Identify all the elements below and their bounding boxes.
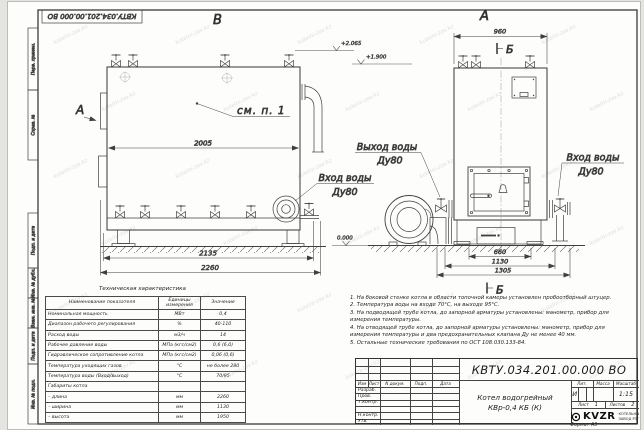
inlet-left-label-dn: Ду80 bbox=[331, 187, 357, 198]
note-line: измерения температуры и два предохраните… bbox=[350, 332, 638, 339]
top-valve bbox=[221, 54, 230, 67]
svg-text:+2.065: +2.065 bbox=[341, 41, 362, 47]
title-block: КВТУ.034.201.00.000 ВО Изм Лист N докум.… bbox=[355, 358, 638, 424]
boiler-side-view: 2005 2135 2260 см. п. 1 В А bbox=[75, 13, 326, 276]
outlet-valve bbox=[436, 198, 453, 218]
svg-text:1130: 1130 bbox=[492, 258, 509, 266]
table-row: Диапазон рабочего регулирования%40-110 bbox=[46, 320, 246, 330]
dimension: 960 bbox=[454, 28, 547, 65]
svg-text:660: 660 bbox=[494, 248, 506, 256]
sheet-cell: Лист 1 bbox=[571, 401, 605, 408]
tech-table-title: Техническая характеристика bbox=[99, 286, 186, 292]
strip-label: Инв. № дубл. bbox=[31, 268, 37, 297]
col-header: Значение bbox=[201, 297, 246, 310]
dimension: 2135 bbox=[104, 221, 314, 261]
table-row: Номинальная мощностьМВт0,4 bbox=[46, 310, 246, 320]
rev-header: N докум. bbox=[380, 380, 410, 387]
corner-stamp-text: КВТУ.034.201.00.000 ВО bbox=[47, 12, 136, 20]
inlet-right-label: Вход воды bbox=[566, 153, 620, 164]
table-row: Рабочее давление водыМПа (кгс/см2)0,6 (6… bbox=[46, 340, 246, 350]
top-valve bbox=[112, 54, 121, 67]
section-marker-top: Б bbox=[497, 43, 514, 56]
blower-fan bbox=[385, 196, 452, 246]
outlet-label: Выход воды bbox=[357, 142, 418, 153]
table-row: – ширинамм1130 bbox=[46, 402, 246, 412]
control-box bbox=[512, 77, 536, 98]
lit-value: И bbox=[571, 387, 578, 401]
svg-text:А: А bbox=[75, 103, 84, 117]
top-valve bbox=[472, 55, 481, 68]
sheets-cell: Листов 2 bbox=[605, 401, 639, 408]
strip-label: Подп. и дата bbox=[31, 331, 37, 361]
top-valve bbox=[526, 55, 535, 68]
rev-header: Изм bbox=[356, 380, 368, 387]
table-row: Гидравлическое сопротивление котлаМПа (к… bbox=[46, 351, 246, 361]
view-direction-A: А bbox=[75, 103, 96, 121]
table-row: Габариты котла bbox=[46, 382, 246, 392]
svg-text:0.000: 0.000 bbox=[337, 236, 353, 242]
svg-text:см. п. 1: см. п. 1 bbox=[237, 105, 286, 117]
sign-row-label: Н.контр. bbox=[356, 412, 382, 418]
drain-valve bbox=[211, 205, 220, 218]
table-row: – длинамм2260 bbox=[46, 392, 246, 402]
doc-title-line2: КВр-0,4 КБ (К) bbox=[488, 403, 542, 413]
note-line: 4. На отводящей трубе котла, до запорной… bbox=[350, 325, 638, 332]
callout-note-1: см. п. 1 bbox=[196, 102, 290, 117]
sheets-label: Листов bbox=[610, 402, 626, 407]
table-header-row: Наименование показателя Единицы измерени… bbox=[46, 297, 246, 310]
svg-text:+1.900: +1.900 bbox=[366, 55, 387, 61]
svg-text:960: 960 bbox=[494, 28, 506, 36]
document-title: Котел водогрейный КВр-0,4 КБ (К) bbox=[459, 380, 571, 425]
inlet-left-label: Вход воды bbox=[318, 173, 372, 184]
table-row: Температура воды (Вход/выход)°С70/95 bbox=[46, 371, 246, 381]
drain-valve bbox=[177, 205, 186, 218]
company-name-line2: ЗАВОД РЭП bbox=[618, 417, 639, 421]
drawing-page: kotelni-zav.kzkotelni-zav.kzkotelni-zav.… bbox=[0, 0, 644, 430]
scale-value: 1:15 bbox=[613, 387, 639, 401]
door-latch bbox=[499, 185, 507, 193]
view-label-A: А bbox=[479, 9, 489, 24]
sheet-label: Лист bbox=[578, 402, 589, 407]
sheets-value: 2 bbox=[631, 402, 634, 408]
company-logo-text: KVZR bbox=[583, 411, 615, 422]
rev-header: Дата bbox=[432, 380, 459, 387]
furnace-door bbox=[468, 167, 530, 216]
drain-valve bbox=[141, 205, 150, 218]
sign-row-label: Пров. bbox=[356, 393, 382, 399]
rev-header: Подп. bbox=[410, 380, 432, 387]
top-valve bbox=[129, 54, 138, 67]
strip-label: Взам. инв. № bbox=[31, 298, 37, 328]
strip-label: Инв. № подл. bbox=[31, 379, 37, 409]
boiler-base bbox=[454, 220, 543, 245]
svg-text:1305: 1305 bbox=[495, 267, 512, 275]
technical-notes: 1. На боковой стенке котла в области топ… bbox=[350, 295, 638, 347]
note-line: измерения температуры. bbox=[350, 317, 638, 324]
strip-label: Справ. № bbox=[31, 114, 37, 135]
inlet-flange bbox=[273, 196, 299, 222]
inlet-right-label-dn: Ду80 bbox=[577, 167, 603, 178]
col-header: Наименование показателя bbox=[46, 297, 159, 310]
svg-text:2005: 2005 bbox=[194, 140, 212, 148]
table-row: – высотамм1950 bbox=[46, 412, 246, 422]
col-header: Единицы измерения bbox=[159, 297, 201, 310]
chimney-elbow bbox=[302, 84, 324, 152]
top-valve bbox=[285, 54, 294, 67]
outlet-label-dn: Ду80 bbox=[376, 156, 402, 167]
drain-valve bbox=[116, 205, 125, 218]
pipe-labels: Выход воды Ду80 Вход воды Ду80 Вход воды… bbox=[295, 142, 624, 201]
table-row: Расход водым3/ч14 bbox=[46, 330, 246, 340]
svg-text:2260: 2260 bbox=[201, 264, 219, 272]
lit-header: Лит. bbox=[571, 380, 593, 387]
company-logo-icon bbox=[571, 411, 580, 423]
strip-label: Подп. и дата bbox=[31, 226, 37, 256]
table-row: Температура уходящих газов°Сне более 280 bbox=[46, 361, 246, 371]
inlet-valve bbox=[550, 198, 571, 241]
sign-row-label: Утв. bbox=[356, 419, 382, 425]
note-line: 5. Остальные технические требования по О… bbox=[350, 340, 638, 347]
strip-label: Перв. примен. bbox=[31, 43, 37, 75]
note-line: 2. Температура воды на входе 70°С, на вы… bbox=[350, 302, 638, 309]
drain-valve bbox=[247, 205, 256, 218]
dimension: 2005 bbox=[109, 140, 299, 149]
svg-text:Б: Б bbox=[506, 43, 514, 56]
format-label: Формат А3 bbox=[570, 423, 597, 428]
svg-text:2135: 2135 bbox=[199, 250, 217, 258]
note-line: 1. На боковой стенке котла в области топ… bbox=[350, 295, 638, 302]
stub-valve bbox=[305, 203, 314, 216]
note-line: 3. На подводящей трубе котла, до запорно… bbox=[350, 310, 638, 317]
drawing-designation: КВТУ.034.201.00.000 ВО bbox=[459, 359, 639, 380]
top-valve bbox=[459, 55, 468, 68]
doc-title-line1: Котел водогрейный bbox=[477, 393, 552, 403]
mass-header: Масса bbox=[593, 380, 613, 387]
rev-header: Лист bbox=[368, 380, 380, 387]
sheet-value: 1 bbox=[595, 402, 598, 408]
view-label-B: В bbox=[213, 13, 222, 28]
scale-header: Масштаб bbox=[613, 380, 639, 387]
tech-table: Наименование показателя Единицы измерени… bbox=[45, 296, 246, 423]
